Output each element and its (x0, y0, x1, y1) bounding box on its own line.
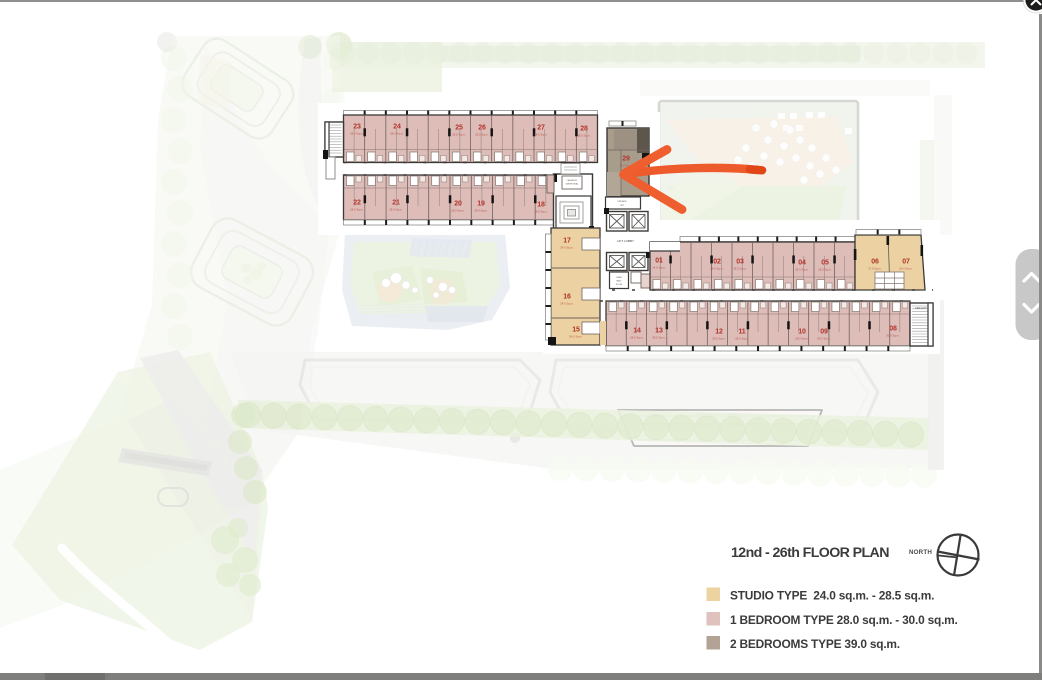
svg-text:24.5 Sq.m.: 24.5 Sq.m. (560, 302, 574, 306)
svg-text:LINEN: LINEN (616, 277, 622, 279)
svg-text:MAID: MAID (617, 280, 623, 283)
svg-text:28.0 Sq.m.: 28.0 Sq.m. (474, 209, 488, 213)
svg-text:12nd - 26th FLOOR PLAN: 12nd - 26th FLOOR PLAN (731, 545, 889, 561)
svg-text:17: 17 (563, 238, 571, 245)
svg-text:28.0 Sq.m.: 28.0 Sq.m. (389, 208, 403, 212)
svg-text:09: 09 (820, 329, 828, 336)
svg-text:27: 27 (537, 125, 545, 132)
svg-text:28: 28 (580, 126, 588, 133)
svg-text:LIFT LOBBY: LIFT LOBBY (617, 239, 634, 243)
svg-text:28.5 Sq.m.: 28.5 Sq.m. (733, 267, 747, 271)
svg-text:24: 24 (393, 124, 401, 131)
svg-text:28.0 Sq.m.: 28.0 Sq.m. (390, 132, 404, 136)
svg-text:23: 23 (353, 124, 361, 131)
svg-text:15: 15 (572, 327, 580, 334)
svg-text:28.0 Sq.m.: 28.0 Sq.m. (475, 133, 489, 137)
svg-text:28.5 Sq.m.: 28.5 Sq.m. (817, 337, 831, 341)
svg-text:03: 03 (736, 259, 744, 266)
svg-text:1 BEDROOM TYPE 28.0 sq.m. - 30: 1 BEDROOM TYPE 28.0 sq.m. - 30.0 sq.m. (730, 613, 958, 627)
svg-text:28.5 Sq.m.: 28.5 Sq.m. (735, 337, 749, 341)
svg-text:NORTH: NORTH (909, 549, 932, 556)
svg-text:24.0 Sq.m.: 24.0 Sq.m. (652, 266, 666, 270)
svg-text:28.0 Sq.m.: 28.0 Sq.m. (452, 133, 466, 137)
svg-text:28.0 Sq.m.: 28.0 Sq.m. (795, 268, 809, 272)
svg-text:25: 25 (455, 125, 463, 132)
svg-text:22: 22 (353, 200, 361, 207)
svg-text:18: 18 (537, 202, 545, 209)
svg-text:LIFT: LIFT (620, 205, 625, 207)
svg-text:21: 21 (392, 200, 400, 207)
svg-text:STUDIO TYPE 24.0 sq.m. - 28.5: STUDIO TYPE 24.0 sq.m. - 28.5 sq.m. (730, 589, 934, 603)
svg-text:14: 14 (633, 328, 641, 335)
svg-text:28.0 Sq.m.: 28.0 Sq.m. (451, 209, 465, 213)
svg-text:24.0 Sq.m.: 24.0 Sq.m. (899, 267, 913, 271)
svg-text:24.0 Sq.m.: 24.0 Sq.m. (560, 246, 574, 250)
svg-text:28.0 Sq.m.: 28.0 Sq.m. (795, 337, 809, 341)
svg-text:26: 26 (478, 125, 486, 132)
svg-text:01: 01 (655, 258, 663, 265)
svg-text:06: 06 (871, 259, 879, 266)
svg-text:PRIVATE: PRIVATE (617, 200, 627, 203)
svg-text:05: 05 (821, 260, 829, 267)
svg-text:24.0 Sq.m.: 24.0 Sq.m. (569, 335, 583, 339)
svg-text:ROOM: ROOM (616, 284, 623, 286)
svg-text:08: 08 (889, 326, 897, 333)
svg-text:LAUNDRY: LAUNDRY (567, 179, 578, 182)
svg-text:07: 07 (902, 259, 910, 266)
svg-text:28.0 Sq.m.: 28.0 Sq.m. (534, 210, 548, 214)
svg-text:28.0 Sq.m.: 28.0 Sq.m. (350, 208, 364, 212)
svg-text:27.5 Sq.m.: 27.5 Sq.m. (868, 267, 882, 271)
svg-text:28.5 Sq.m.: 28.5 Sq.m. (652, 336, 666, 340)
svg-text:30.0 Sq.m.: 30.0 Sq.m. (886, 334, 900, 338)
svg-text:28.0 Sq.m.: 28.0 Sq.m. (710, 267, 724, 271)
svg-text:28.0 Sq.m.: 28.0 Sq.m. (534, 133, 548, 137)
svg-text:28.0 Sq.m.: 28.0 Sq.m. (350, 132, 364, 136)
svg-text:28.0 Sq.m.: 28.0 Sq.m. (630, 336, 644, 340)
svg-text:10: 10 (798, 329, 806, 336)
svg-text:04: 04 (798, 260, 806, 267)
svg-text:2 BEDROOMS TYPE 39.0 sq.m.: 2 BEDROOMS TYPE 39.0 sq.m. (730, 637, 900, 651)
svg-text:19: 19 (477, 201, 485, 208)
svg-text:28.0 Sq.m.: 28.0 Sq.m. (577, 134, 591, 138)
svg-text:11: 11 (739, 329, 746, 336)
svg-text:28.0 Sq.m.: 28.0 Sq.m. (818, 268, 832, 272)
svg-text:WATER SEAL: WATER SEAL (566, 183, 580, 186)
svg-text:12: 12 (715, 329, 723, 336)
svg-text:28.0 Sq.m.: 28.0 Sq.m. (712, 337, 726, 341)
svg-text:FIRE EXIT: FIRE EXIT (915, 307, 927, 310)
svg-text:29: 29 (622, 156, 630, 163)
svg-text:13: 13 (655, 328, 663, 335)
svg-text:20: 20 (454, 201, 462, 208)
svg-text:16: 16 (563, 294, 571, 301)
svg-text:02: 02 (713, 259, 721, 266)
